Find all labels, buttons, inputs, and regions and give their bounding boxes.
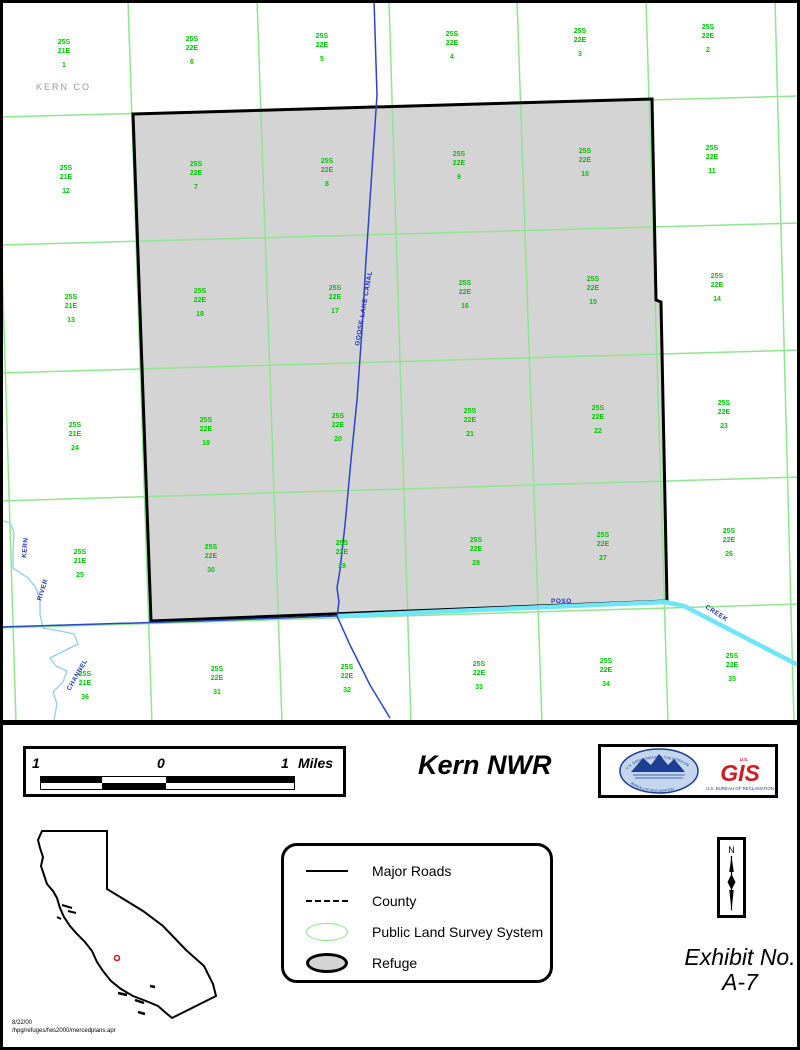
poso-label: POSO bbox=[551, 598, 572, 605]
map-canvas: KERN CO 25S21E125S22E625S22E525S22E425S2… bbox=[0, 0, 800, 723]
legend-label: Major Roads bbox=[372, 863, 451, 879]
north-needle-diamond bbox=[728, 874, 736, 890]
north-arrow: N bbox=[720, 840, 743, 915]
scale-center-value: 0 bbox=[157, 755, 165, 771]
scale-units-label: Miles bbox=[298, 755, 333, 771]
california-outline bbox=[38, 831, 216, 1018]
dashed-line-swatch bbox=[306, 900, 348, 902]
scale-right-value: 1 bbox=[281, 755, 289, 771]
exhibit-line1: Exhibit No. bbox=[655, 945, 800, 970]
legend-label: County bbox=[372, 893, 416, 909]
footnote: 8/22/00 /hpg/refuges/fws2000/mercedplans… bbox=[12, 1019, 116, 1036]
scale-bar: 1 0 1 Miles bbox=[23, 746, 346, 797]
footnote-date: 8/22/00 bbox=[12, 1019, 116, 1027]
scale-bar-graphic bbox=[40, 776, 295, 790]
solid-line-swatch bbox=[306, 870, 348, 872]
refuge-ellipse-swatch bbox=[306, 953, 348, 973]
gis-logo: GIS bbox=[720, 760, 760, 786]
legend-label: Public Land Survey System bbox=[372, 924, 543, 940]
north-needle-top bbox=[729, 856, 734, 872]
page: KERN CO 25S21E125S22E625S22E525S22E425S2… bbox=[0, 0, 800, 1050]
gis-caption: U.S. BUREAU OF RECLAMATION bbox=[706, 786, 774, 791]
legend-box: Major Roads County Public Land Survey Sy… bbox=[281, 843, 553, 983]
map-title: Kern NWR bbox=[418, 750, 552, 781]
california-inset-map bbox=[8, 818, 220, 1030]
north-arrow-box: N bbox=[717, 837, 746, 918]
north-needle-bottom bbox=[729, 890, 733, 911]
footnote-path: /hpg/refuges/fws2000/mercedplans.apr bbox=[12, 1027, 116, 1035]
county-label: KERN CO bbox=[36, 82, 91, 92]
legend-label: Refuge bbox=[372, 955, 417, 971]
exhibit-line2: A-7 bbox=[655, 970, 800, 995]
north-label: N bbox=[728, 845, 735, 855]
agency-logos: U.S. DEPARTMENT OF THE INTERIOR BUREAU O… bbox=[601, 747, 775, 795]
exhibit-number: Exhibit No. A-7 bbox=[655, 945, 800, 996]
agency-logo-box: U.S. DEPARTMENT OF THE INTERIOR BUREAU O… bbox=[598, 744, 778, 798]
scale-left-value: 1 bbox=[32, 755, 40, 771]
plss-ellipse-swatch bbox=[306, 923, 348, 941]
map-footer-divider bbox=[0, 720, 800, 725]
